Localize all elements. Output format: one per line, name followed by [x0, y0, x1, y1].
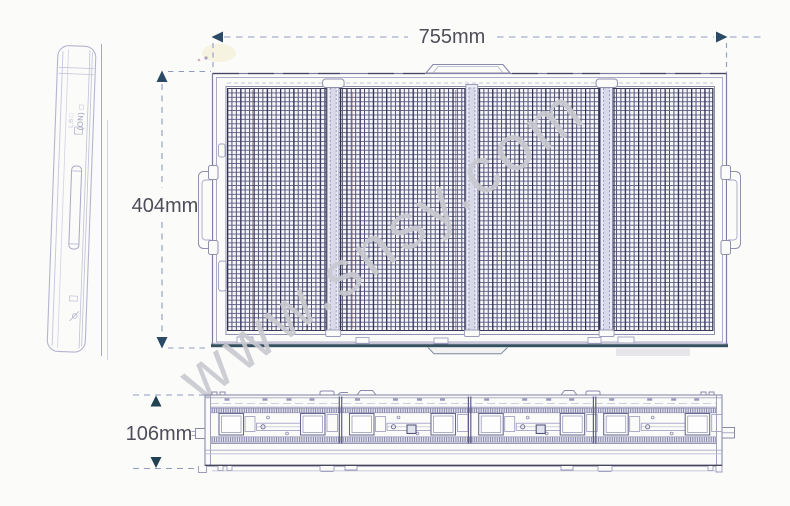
- svg-text:(ON) □: (ON) □: [76, 104, 86, 130]
- svg-text:755mm: 755mm: [419, 26, 486, 48]
- svg-text:106mm: 106mm: [126, 423, 193, 445]
- svg-text:404mm: 404mm: [132, 195, 199, 217]
- svg-text:L:B □: L:B □: [69, 113, 76, 128]
